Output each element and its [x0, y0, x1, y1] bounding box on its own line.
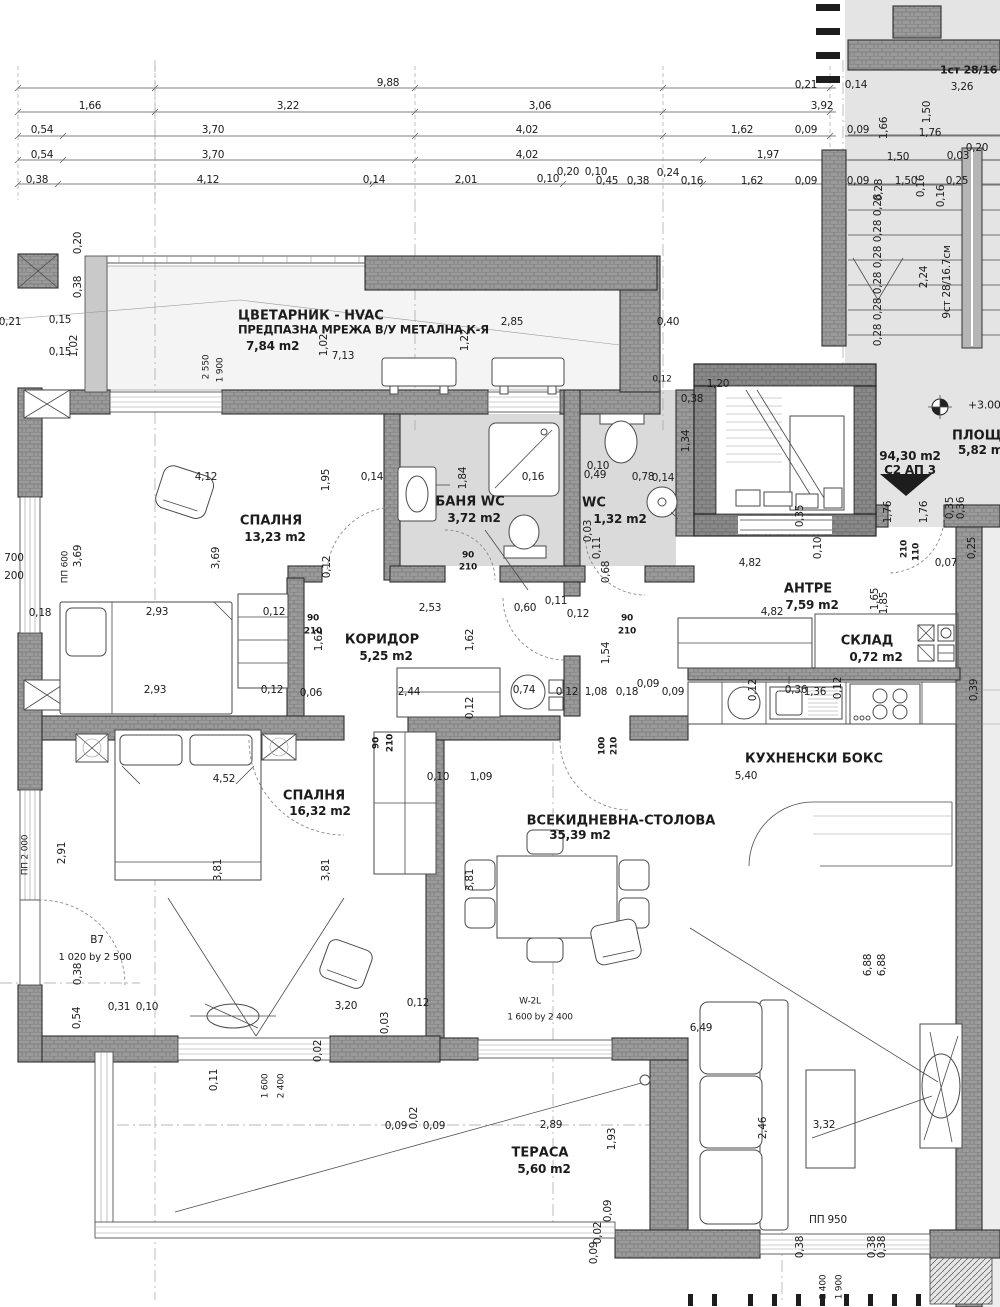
planter-rail [107, 256, 365, 263]
armchair-bedroom1 [153, 463, 216, 521]
storage-icons [918, 625, 954, 661]
terrace-parapet [95, 1052, 615, 1238]
plant [920, 1024, 962, 1148]
window-bath-top [488, 392, 560, 412]
entry-closet [678, 618, 812, 668]
armchair-living-1 [318, 937, 375, 990]
window-left-1 [20, 497, 40, 633]
elevator-door [738, 516, 832, 534]
window-left-2 [20, 790, 40, 900]
kitchen-sink-round [728, 687, 760, 719]
window-bottom-right [760, 1234, 930, 1254]
window-w2l [478, 1040, 612, 1058]
wardrobe [374, 732, 436, 874]
sofa [700, 1000, 788, 1230]
plan-drawing [0, 0, 1000, 1307]
bed-2 [115, 730, 261, 880]
stove [850, 684, 920, 724]
window-bedroom2-bottom [178, 1038, 330, 1060]
coffee-table [806, 1070, 855, 1168]
kitchen-island [749, 802, 952, 866]
ceiling-vent-2 [262, 734, 296, 760]
elevator-shaft [694, 364, 876, 536]
window-bedroom1-top [110, 392, 222, 412]
hall-shelf [238, 594, 288, 688]
hall-washer [511, 675, 563, 710]
bed-1 [60, 602, 232, 714]
shower [489, 423, 559, 496]
door-b7-opening [20, 900, 40, 985]
hall-bench [397, 668, 500, 717]
floor-plan: 9,880,210,141,663,223,063,920,543,704,02… [0, 0, 1000, 1307]
ceiling-vent-1 [76, 734, 108, 762]
